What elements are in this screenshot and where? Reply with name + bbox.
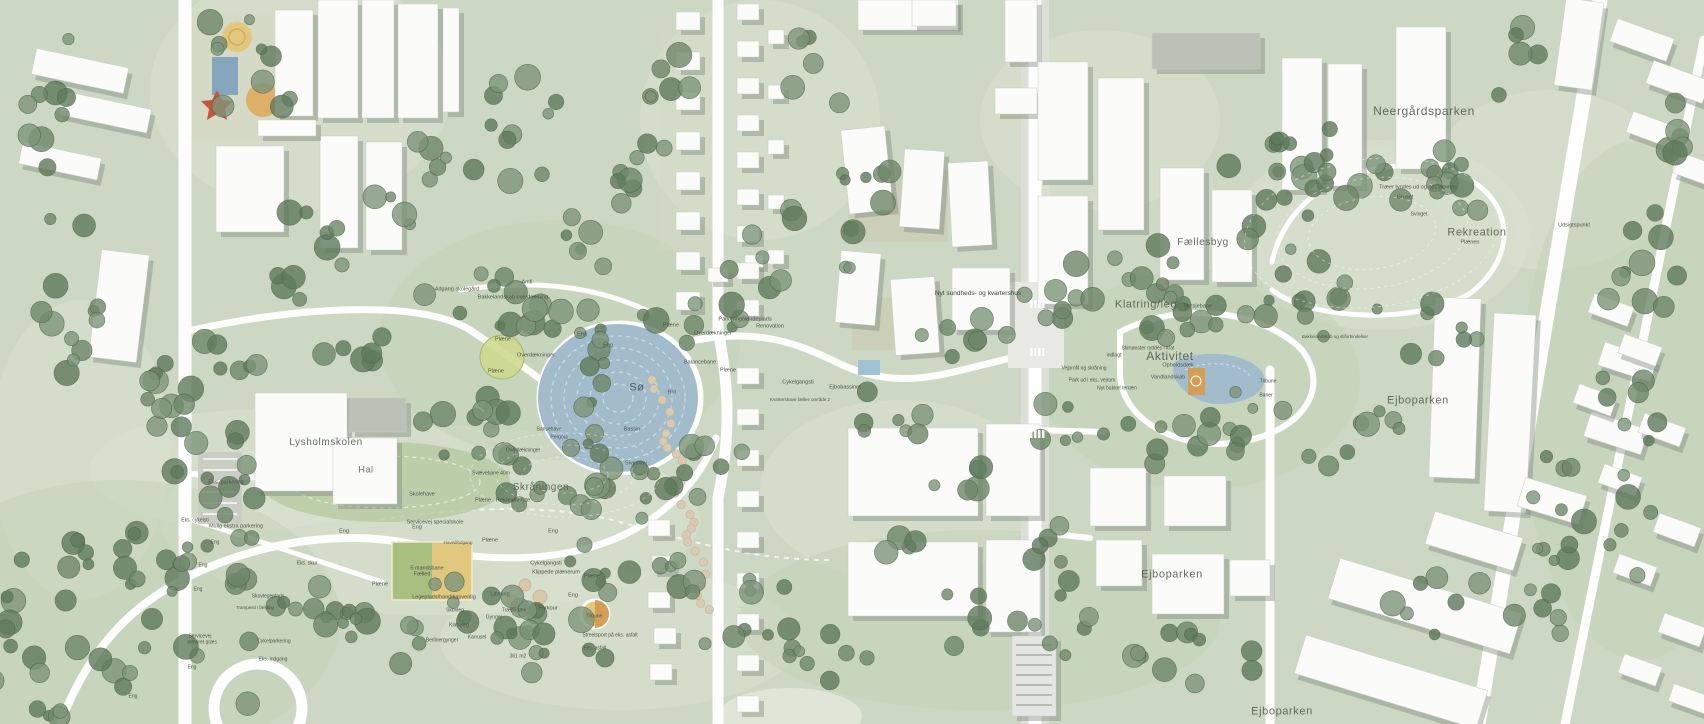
masterplan-map: NeergårdsparkenRekreationFællesbygKlatri…	[0, 0, 1704, 724]
map-canvas	[0, 0, 1704, 724]
